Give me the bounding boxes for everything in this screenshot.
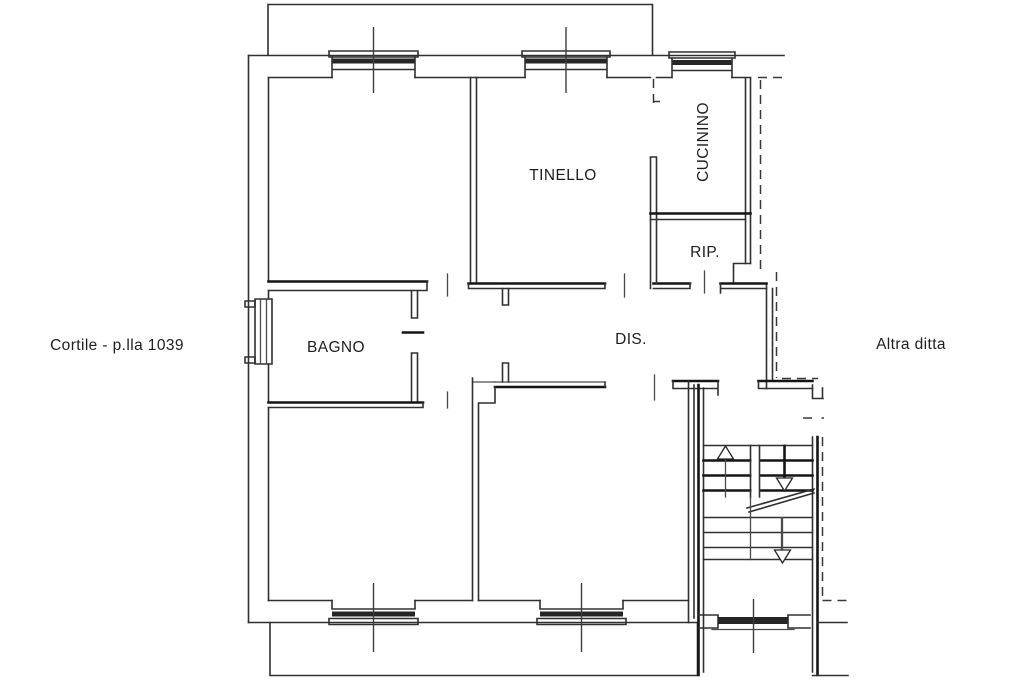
bottom-projection-outline bbox=[270, 623, 698, 676]
room-label-bagno: BAGNO bbox=[307, 339, 365, 356]
room-label-dis: DIS. bbox=[615, 331, 647, 348]
corridor-top-wall bbox=[469, 284, 691, 306]
floor-plan-page: TINELLO CUCININO RIP. BAGNO DIS. Cortile… bbox=[0, 0, 1024, 683]
boundary-dashed-lines bbox=[758, 78, 848, 601]
wall-topleft-tinello bbox=[471, 78, 477, 284]
room-rip-walls bbox=[721, 264, 767, 294]
staircase bbox=[699, 437, 849, 676]
stair-down-arrow-upper-icon bbox=[777, 446, 793, 491]
outside-annotations: Cortile - p.lla 1039 Altra ditta bbox=[50, 336, 946, 354]
wall-bottomcenter-stair bbox=[689, 381, 704, 675]
floor-plan-drawing: TINELLO CUCININO RIP. BAGNO DIS. Cortile… bbox=[0, 0, 1024, 683]
corridor-bottom-wall bbox=[473, 363, 824, 601]
window-stair-bottom bbox=[699, 599, 811, 653]
annotation-cortile: Cortile - p.lla 1039 bbox=[50, 337, 184, 354]
window-bottom-center bbox=[537, 583, 626, 652]
top-projection-outline bbox=[268, 5, 653, 56]
wall-right-landing bbox=[767, 285, 773, 389]
wall-tinello-cucinino bbox=[651, 79, 661, 289]
stair-down-arrow-lower-icon bbox=[775, 518, 791, 563]
room-label-tinello: TINELLO bbox=[529, 167, 596, 184]
room-label-cucinino: CUCININO bbox=[695, 102, 712, 182]
window-top-tinello bbox=[522, 27, 610, 93]
room-label-rip: RIP. bbox=[690, 244, 720, 261]
window-top-left bbox=[329, 27, 418, 93]
room-labels: TINELLO CUCININO RIP. BAGNO DIS. bbox=[307, 102, 720, 356]
annotation-altra-ditta: Altra ditta bbox=[876, 336, 946, 353]
window-bottom-left bbox=[329, 583, 418, 652]
